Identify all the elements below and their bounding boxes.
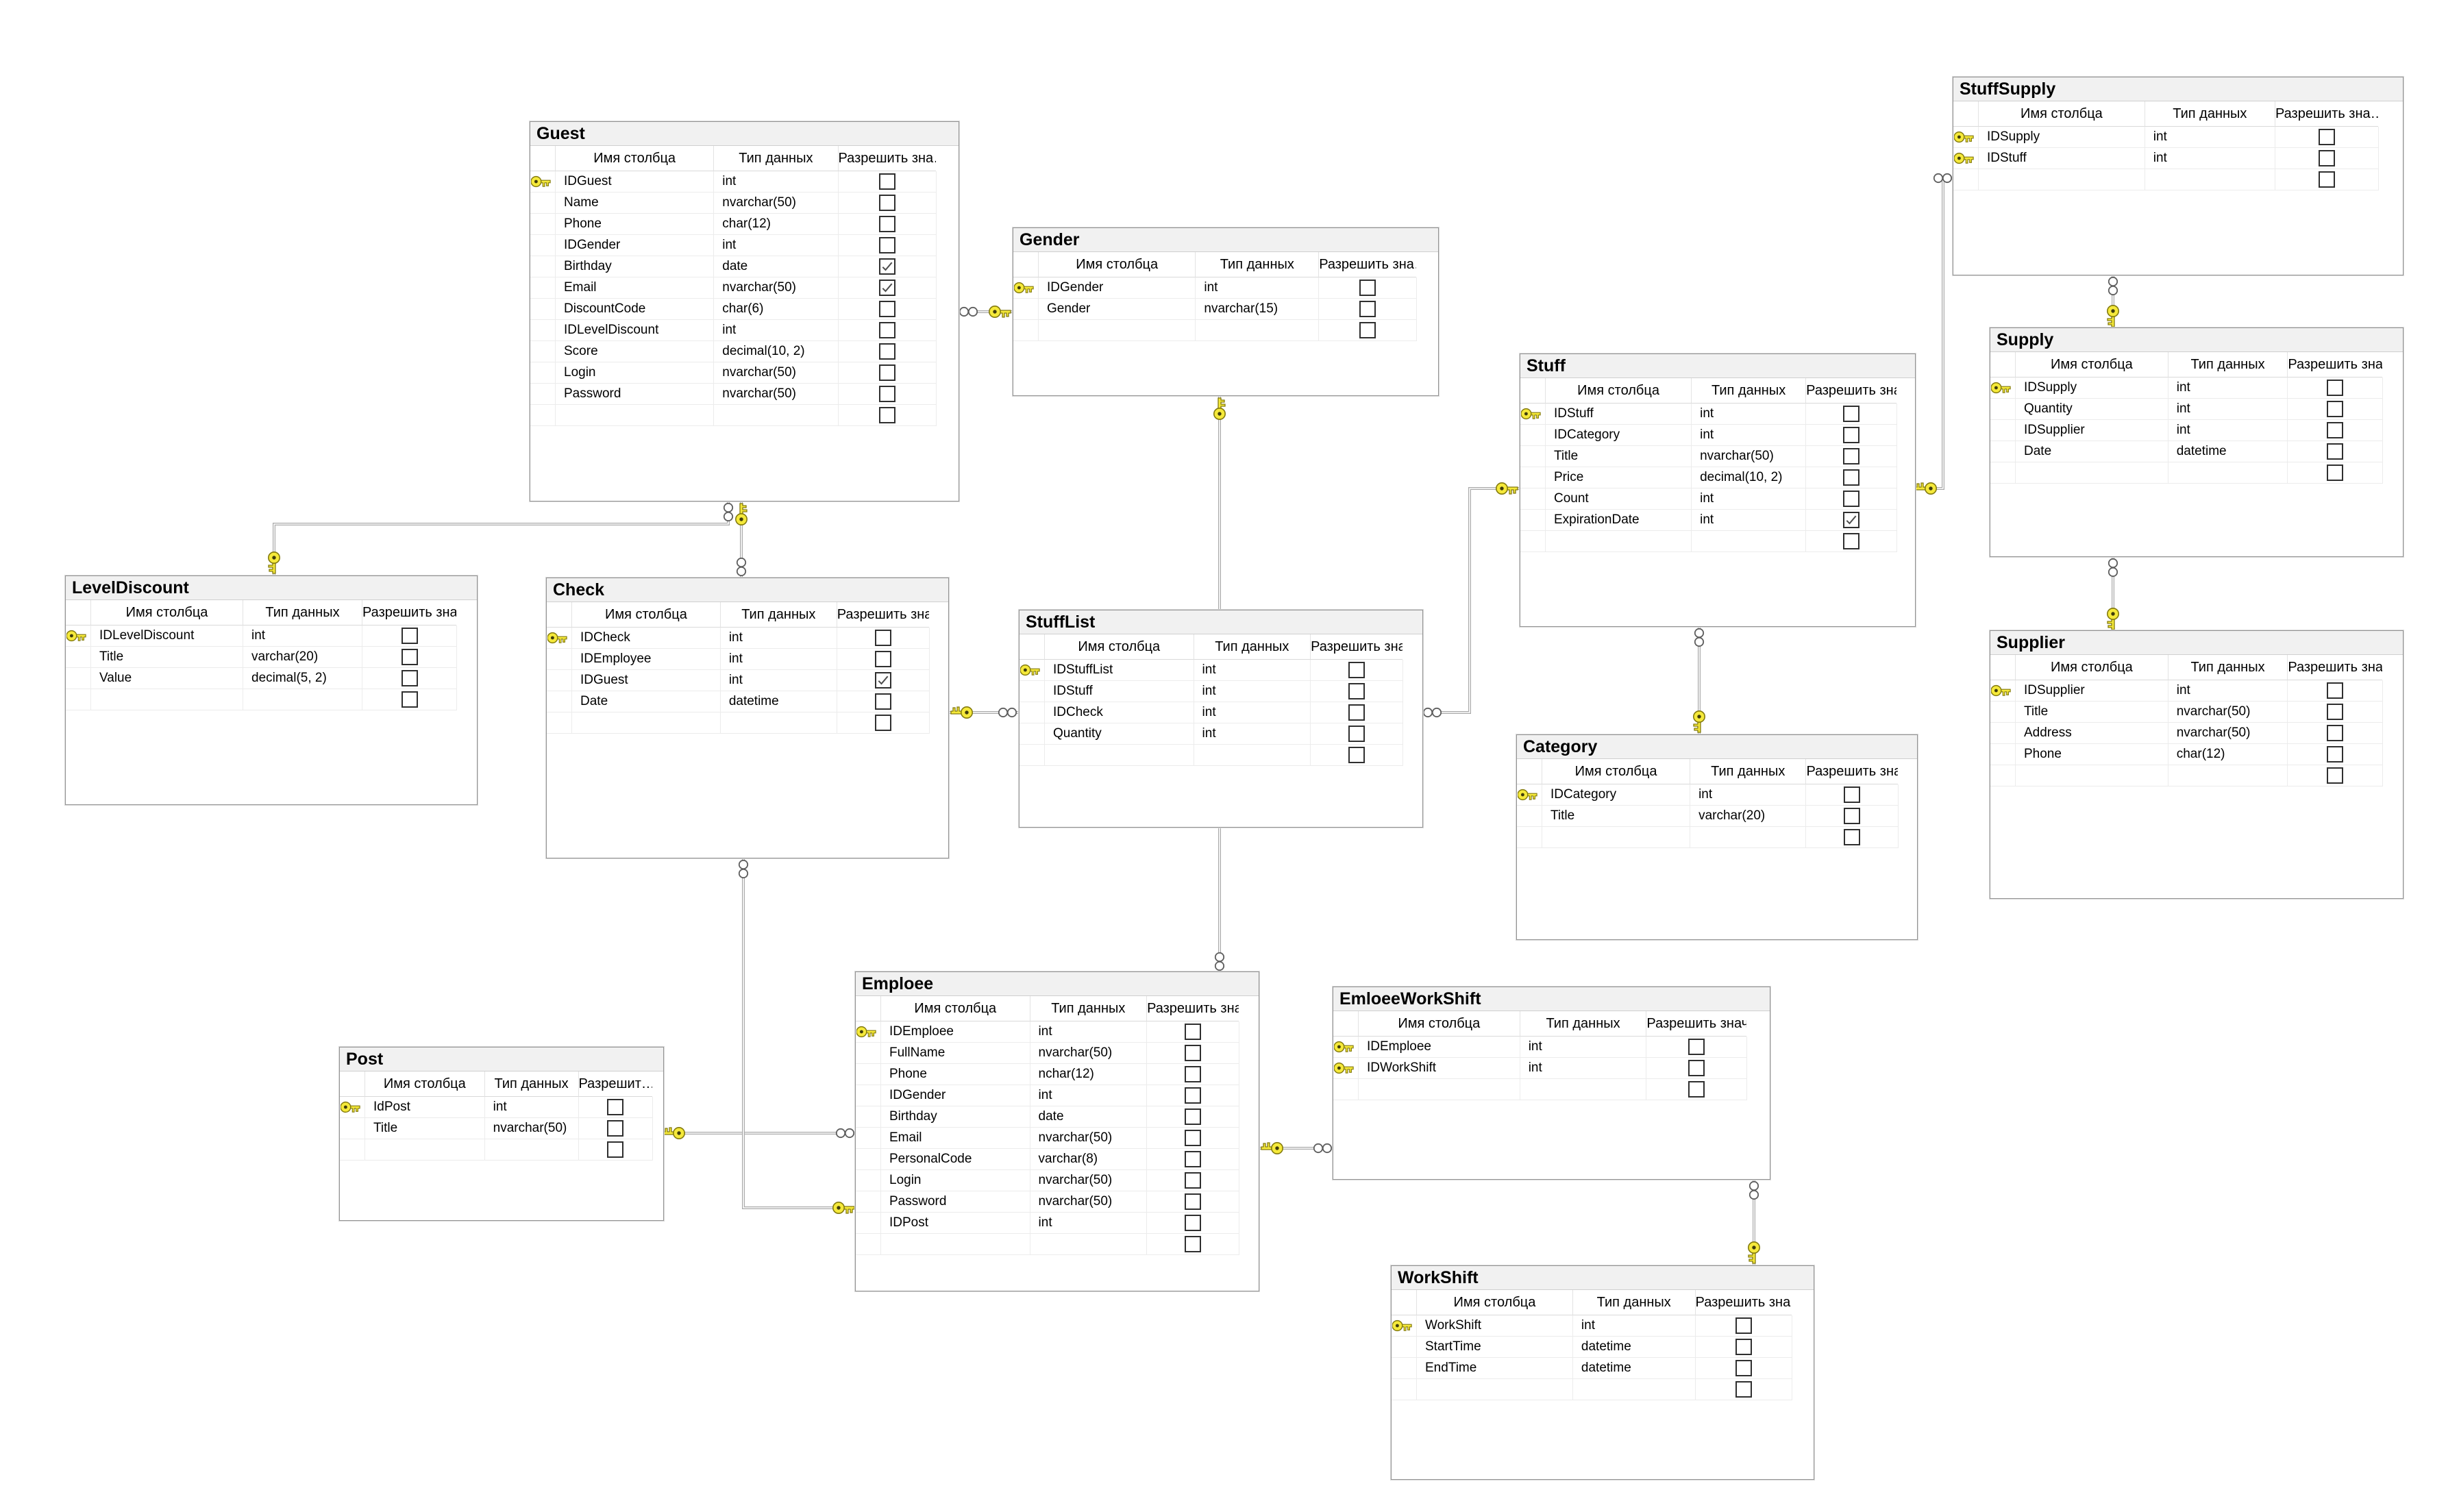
- allow-nulls-checkbox[interactable]: [875, 693, 891, 710]
- data-type-cell[interactable]: nvarchar(50): [713, 384, 837, 405]
- table-StuffList[interactable]: StuffListИмя столбцаТип данныхРазрешить …: [1019, 610, 1423, 828]
- data-type-cell[interactable]: varchar(20): [243, 647, 362, 668]
- data-type-cell[interactable]: int: [1195, 277, 1318, 299]
- data-type-cell[interactable]: [1691, 531, 1805, 552]
- allow-nulls-cell: [578, 1097, 653, 1118]
- column-name-cell[interactable]: [880, 1234, 1030, 1255]
- data-type-cell[interactable]: nvarchar(50): [713, 277, 837, 299]
- allow-nulls-checkbox[interactable]: [879, 322, 895, 338]
- allow-nulls-checkbox[interactable]: [879, 237, 895, 253]
- column-name-cell[interactable]: IDLevelDiscount: [555, 320, 713, 341]
- column-name-cell[interactable]: IDCheck: [1044, 702, 1194, 723]
- allow-nulls-checkbox[interactable]: [1688, 1081, 1705, 1098]
- allow-nulls-checkbox[interactable]: [1688, 1060, 1705, 1076]
- column-name-cell[interactable]: IDStuff: [1978, 148, 2145, 169]
- data-type-cell[interactable]: [1030, 1234, 1147, 1255]
- allow-nulls-checkbox[interactable]: [2319, 150, 2335, 166]
- row-icon-cell: [1392, 1315, 1416, 1337]
- row-icon-cell: [1990, 723, 2015, 744]
- table-Category[interactable]: CategoryИмя столбцаТип данныхРазрешить з…: [1516, 734, 1918, 940]
- data-type-cell[interactable]: nvarchar(50): [1030, 1170, 1147, 1191]
- data-type-cell[interactable]: [1520, 1079, 1646, 1100]
- table-StuffSupply[interactable]: StuffSupplyИмя столбцаТип данныхРазрешит…: [1953, 77, 2404, 275]
- allow-nulls-checkbox[interactable]: [1185, 1130, 1201, 1146]
- allow-nulls-cell: [1318, 299, 1416, 320]
- column-name-cell[interactable]: Password: [880, 1191, 1030, 1213]
- header-allow-nulls: Разрешить зна…: [1310, 634, 1403, 660]
- many-side-infinity-icon: [739, 860, 747, 878]
- fk-stufflist-check[interactable]: [949, 707, 1019, 718]
- fk-check-emploee[interactable]: [739, 858, 855, 1213]
- allow-nulls-cell: [1805, 488, 1896, 510]
- header-data-type: Тип данных: [1195, 252, 1318, 277]
- column-name-cell[interactable]: Email: [555, 277, 713, 299]
- allow-nulls-cell: [1695, 1379, 1792, 1400]
- data-type-cell[interactable]: int: [1030, 1213, 1147, 1234]
- column-name-cell[interactable]: IDSupply: [2015, 377, 2168, 399]
- data-type-cell[interactable]: nchar(12): [1030, 1064, 1147, 1085]
- column-name-cell[interactable]: [1358, 1079, 1520, 1100]
- column-name-cell[interactable]: Gender: [1038, 299, 1195, 320]
- row-icon-cell: [1990, 377, 2015, 399]
- one-side-key-icon: [663, 1128, 684, 1139]
- column-name-cell[interactable]: IDEmploee: [1358, 1037, 1520, 1058]
- data-type-cell[interactable]: int: [243, 625, 362, 647]
- primary-key-icon: [1954, 130, 1977, 144]
- column-name-cell[interactable]: IDWorkShift: [1358, 1058, 1520, 1079]
- allow-nulls-checkbox[interactable]: [2327, 725, 2343, 741]
- allow-nulls-checkbox[interactable]: [2327, 682, 2343, 699]
- allow-nulls-checkbox[interactable]: [879, 407, 895, 423]
- data-type-cell[interactable]: decimal(10, 2): [1691, 467, 1805, 488]
- data-type-cell[interactable]: int: [713, 235, 837, 256]
- data-type-cell[interactable]: [243, 689, 362, 710]
- row-icon-cell: [1392, 1337, 1416, 1358]
- allow-nulls-cell: [1805, 510, 1896, 531]
- allow-nulls-checkbox[interactable]: [879, 258, 895, 275]
- allow-nulls-checkbox[interactable]: [1735, 1317, 1752, 1334]
- fk-check-guest[interactable]: [736, 501, 747, 578]
- data-type-cell[interactable]: [2168, 462, 2288, 484]
- data-type-cell[interactable]: int: [2168, 377, 2288, 399]
- column-name-cell[interactable]: Date: [571, 691, 720, 712]
- column-name-cell[interactable]: Name: [555, 193, 713, 214]
- columns-grid: Имя столбцаТип данныхРазрешить зна…IDSup…: [1953, 101, 2403, 190]
- table-Supply[interactable]: SupplyИмя столбцаТип данныхРазрешить зна…: [1990, 327, 2404, 557]
- column-name-cell[interactable]: Phone: [2015, 744, 2168, 765]
- column-name-cell[interactable]: IDEmployee: [571, 649, 720, 670]
- column-name-cell[interactable]: [90, 689, 243, 710]
- data-type-cell[interactable]: int: [1520, 1037, 1646, 1058]
- row-icon-cell: [856, 1043, 880, 1064]
- data-type-cell[interactable]: int: [720, 670, 837, 691]
- allow-nulls-cell: [1646, 1037, 1746, 1058]
- column-name-cell[interactable]: Title: [90, 647, 243, 668]
- column-name-cell[interactable]: FullName: [880, 1043, 1030, 1064]
- header-icon-cell: [530, 146, 555, 171]
- data-type-cell[interactable]: nvarchar(50): [1691, 446, 1805, 467]
- columns-grid: Имя столбцаТип данныхРазрешить зна…IDGue…: [530, 146, 959, 426]
- data-type-cell[interactable]: [1194, 745, 1311, 766]
- column-name-cell[interactable]: [364, 1139, 484, 1161]
- data-type-cell[interactable]: int: [1030, 1021, 1147, 1043]
- data-type-cell[interactable]: datetime: [720, 691, 837, 712]
- allow-nulls-checkbox[interactable]: [879, 216, 895, 232]
- data-type-cell[interactable]: int: [2168, 680, 2288, 702]
- data-type-cell[interactable]: int: [2145, 148, 2275, 169]
- column-name-cell[interactable]: Date: [2015, 441, 2168, 462]
- allow-nulls-checkbox[interactable]: [1844, 786, 1860, 803]
- allow-nulls-checkbox[interactable]: [2327, 380, 2343, 396]
- data-type-cell[interactable]: varchar(8): [1030, 1149, 1147, 1170]
- data-type-cell[interactable]: datetime: [1572, 1337, 1695, 1358]
- column-name-cell[interactable]: Quantity: [2015, 399, 2168, 420]
- allow-nulls-checkbox[interactable]: [1185, 1236, 1201, 1252]
- header-data-type: Тип данных: [2168, 655, 2288, 680]
- allow-nulls-checkbox[interactable]: [1843, 406, 1859, 422]
- fk-ews-workshift[interactable]: [1749, 1180, 1759, 1265]
- allow-nulls-checkbox[interactable]: [1735, 1360, 1752, 1376]
- allow-nulls-checkbox[interactable]: [1843, 491, 1859, 507]
- column-name-cell[interactable]: IDGuest: [555, 171, 713, 193]
- column-name-cell[interactable]: Title: [2015, 702, 2168, 723]
- data-type-cell[interactable]: int: [1520, 1058, 1646, 1079]
- column-name-cell[interactable]: WorkShift: [1416, 1315, 1572, 1337]
- fk-emploee-post[interactable]: [663, 1128, 855, 1139]
- allow-nulls-checkbox[interactable]: [1185, 1172, 1201, 1189]
- column-name-cell[interactable]: IDGuest: [571, 670, 720, 691]
- allow-nulls-checkbox[interactable]: [607, 1120, 623, 1137]
- column-name-cell[interactable]: [1044, 745, 1194, 766]
- allow-nulls-checkbox[interactable]: [401, 628, 418, 644]
- allow-nulls-cell: [1146, 1191, 1239, 1213]
- data-type-cell[interactable]: int: [1030, 1085, 1147, 1106]
- allow-nulls-checkbox[interactable]: [875, 651, 891, 667]
- column-name-cell[interactable]: ExpirationDate: [1545, 510, 1691, 531]
- one-side-key-icon: [1915, 483, 1936, 494]
- header-column-name: Имя столбца: [1978, 101, 2145, 127]
- table-Supplier[interactable]: SupplierИмя столбцаТип данныхРазрешить з…: [1990, 630, 2404, 899]
- allow-nulls-checkbox[interactable]: [1843, 512, 1859, 528]
- data-type-cell[interactable]: int: [1691, 510, 1805, 531]
- data-type-cell[interactable]: nvarchar(15): [1195, 299, 1318, 320]
- column-name-cell[interactable]: Price: [1545, 467, 1691, 488]
- fk-guest-gender[interactable]: [959, 306, 1013, 317]
- allow-nulls-cell: [1805, 404, 1896, 425]
- row-gutter: [1239, 1149, 1259, 1170]
- allow-nulls-checkbox[interactable]: [1348, 747, 1365, 763]
- allow-nulls-cell: [1146, 1149, 1239, 1170]
- allow-nulls-checkbox[interactable]: [1843, 448, 1859, 464]
- data-type-cell[interactable]: decimal(5, 2): [243, 668, 362, 689]
- columns-grid: Имя столбцаТип данныхРазрешить зна…IDSup…: [1990, 352, 2403, 484]
- column-name-cell[interactable]: Password: [555, 384, 713, 405]
- column-name-cell[interactable]: IDGender: [555, 235, 713, 256]
- column-name-cell[interactable]: Phone: [880, 1064, 1030, 1085]
- data-type-cell[interactable]: nvarchar(50): [2168, 702, 2288, 723]
- column-name-cell[interactable]: Score: [555, 341, 713, 362]
- column-name-cell[interactable]: StartTime: [1416, 1337, 1572, 1358]
- allow-nulls-checkbox[interactable]: [2319, 129, 2335, 145]
- data-type-cell[interactable]: int: [1691, 425, 1805, 446]
- allow-nulls-checkbox[interactable]: [1348, 662, 1365, 678]
- data-type-cell[interactable]: nvarchar(50): [1030, 1191, 1147, 1213]
- allow-nulls-checkbox[interactable]: [875, 715, 891, 731]
- fk-stufflist-stuff[interactable]: [1423, 483, 1520, 717]
- allow-nulls-checkbox[interactable]: [1688, 1039, 1705, 1055]
- table-Check[interactable]: CheckИмя столбцаТип данныхРазрешить зна……: [546, 578, 949, 858]
- column-name-cell[interactable]: IDEmploee: [880, 1021, 1030, 1043]
- column-name-cell[interactable]: [1038, 320, 1195, 341]
- column-name-cell[interactable]: IDStuff: [1545, 404, 1691, 425]
- table-Guest[interactable]: GuestИмя столбцаТип данныхРазрешить зна……: [530, 121, 959, 501]
- data-type-cell[interactable]: datetime: [2168, 441, 2288, 462]
- allow-nulls-checkbox[interactable]: [2327, 422, 2343, 438]
- data-type-cell[interactable]: varchar(20): [1690, 806, 1805, 827]
- header-allow-nulls: Разрешить зна…: [362, 600, 456, 625]
- column-name-cell[interactable]: Value: [90, 668, 243, 689]
- column-name-cell[interactable]: EndTime: [1416, 1358, 1572, 1379]
- fk-stuffsupply-stuff[interactable]: [1915, 174, 1953, 494]
- column-name-cell[interactable]: Title: [1542, 806, 1690, 827]
- allow-nulls-checkbox[interactable]: [607, 1099, 623, 1115]
- data-type-cell[interactable]: nvarchar(50): [1030, 1128, 1147, 1149]
- column-name-cell[interactable]: Birthday: [555, 256, 713, 277]
- allow-nulls-checkbox[interactable]: [1844, 829, 1860, 845]
- allow-nulls-checkbox[interactable]: [1185, 1108, 1201, 1125]
- allow-nulls-checkbox[interactable]: [2319, 171, 2335, 188]
- data-type-cell[interactable]: int: [713, 171, 837, 193]
- fk-ews-emploee[interactable]: [1259, 1143, 1333, 1154]
- row-gutter: [2382, 462, 2403, 484]
- allow-nulls-checkbox[interactable]: [2327, 767, 2343, 784]
- column-name-cell[interactable]: IDLevelDiscount: [90, 625, 243, 647]
- column-name-cell[interactable]: IDGender: [880, 1085, 1030, 1106]
- data-type-cell[interactable]: [2168, 765, 2288, 786]
- header-icon-cell: [856, 996, 880, 1021]
- allow-nulls-checkbox[interactable]: [607, 1141, 623, 1158]
- fk-stuff-category[interactable]: [1694, 627, 1705, 734]
- data-type-cell[interactable]: int: [1572, 1315, 1695, 1337]
- column-name-cell[interactable]: IDPost: [880, 1213, 1030, 1234]
- row-icon-cell: [66, 668, 90, 689]
- column-name-cell[interactable]: Email: [880, 1128, 1030, 1149]
- column-name-cell[interactable]: Title: [364, 1118, 484, 1139]
- allow-nulls-checkbox[interactable]: [1185, 1151, 1201, 1167]
- column-name-cell[interactable]: Phone: [555, 214, 713, 235]
- data-type-cell[interactable]: [720, 712, 837, 734]
- row-gutter: [1239, 1191, 1259, 1213]
- allow-nulls-checkbox[interactable]: [1359, 322, 1376, 338]
- allow-nulls-checkbox[interactable]: [879, 280, 895, 296]
- allow-nulls-checkbox[interactable]: [879, 173, 895, 190]
- row-gutter: [1403, 745, 1422, 766]
- data-type-cell[interactable]: int: [1194, 681, 1311, 702]
- data-type-cell[interactable]: int: [484, 1097, 578, 1118]
- allow-nulls-checkbox[interactable]: [1843, 469, 1859, 486]
- header-icon-cell: [1990, 352, 2015, 377]
- row-icon-cell: [1013, 299, 1038, 320]
- data-type-cell[interactable]: [713, 405, 837, 426]
- column-name-cell[interactable]: [571, 712, 720, 734]
- allow-nulls-checkbox[interactable]: [1735, 1339, 1752, 1355]
- allow-nulls-checkbox[interactable]: [1185, 1024, 1201, 1040]
- allow-nulls-cell: [1146, 1213, 1239, 1234]
- row-gutter: [1403, 681, 1422, 702]
- allow-nulls-checkbox[interactable]: [1348, 726, 1365, 742]
- table-title: EmloeeWorkShift: [1333, 987, 1770, 1011]
- column-name-cell[interactable]: Count: [1545, 488, 1691, 510]
- allow-nulls-checkbox[interactable]: [1185, 1045, 1201, 1061]
- data-type-cell[interactable]: int: [1194, 702, 1311, 723]
- data-type-cell[interactable]: int: [1194, 660, 1311, 681]
- allow-nulls-checkbox[interactable]: [1843, 427, 1859, 443]
- column-name-cell[interactable]: Title: [1545, 446, 1691, 467]
- data-type-cell[interactable]: nvarchar(50): [2168, 723, 2288, 744]
- data-type-cell[interactable]: nvarchar(50): [713, 193, 837, 214]
- allow-nulls-checkbox[interactable]: [879, 386, 895, 402]
- one-side-key-icon: [736, 504, 747, 525]
- column-name-cell[interactable]: [1542, 827, 1690, 848]
- column-name-cell[interactable]: Birthday: [880, 1106, 1030, 1128]
- allow-nulls-checkbox[interactable]: [401, 670, 418, 686]
- data-type-cell[interactable]: nvarchar(50): [713, 362, 837, 384]
- allow-nulls-checkbox[interactable]: [879, 301, 895, 317]
- data-type-cell[interactable]: [1690, 827, 1805, 848]
- column-name-cell[interactable]: IDCategory: [1542, 784, 1690, 806]
- allow-nulls-checkbox[interactable]: [401, 691, 418, 708]
- column-name-cell[interactable]: IDSupplier: [2015, 680, 2168, 702]
- data-type-cell[interactable]: int: [2168, 420, 2288, 441]
- table-Stuff[interactable]: StuffИмя столбцаТип данныхРазрешить зна……: [1520, 354, 1916, 627]
- table-Post[interactable]: PostИмя столбцаТип данныхРазрешит…IdPost…: [339, 1047, 664, 1221]
- columns-grid: Имя столбцаТип данныхРазрешить зна…IDChe…: [547, 602, 948, 734]
- fk-stuffsupply-supply[interactable]: [2108, 275, 2118, 327]
- allow-nulls-checkbox[interactable]: [1359, 280, 1376, 296]
- column-name-cell[interactable]: DiscountCode: [555, 299, 713, 320]
- data-type-cell[interactable]: int: [720, 649, 837, 670]
- data-type-cell[interactable]: [1572, 1379, 1695, 1400]
- column-name-cell[interactable]: IDCheck: [571, 628, 720, 649]
- allow-nulls-checkbox[interactable]: [875, 672, 891, 689]
- table-EmloeeWorkShift[interactable]: EmloeeWorkShiftИмя столбцаТип данныхРазр…: [1333, 987, 1770, 1180]
- data-type-cell[interactable]: date: [1030, 1106, 1147, 1128]
- column-name-cell[interactable]: IDStuff: [1044, 681, 1194, 702]
- row-gutter: [1239, 1043, 1259, 1064]
- allow-nulls-checkbox[interactable]: [401, 649, 418, 665]
- column-name-cell[interactable]: [555, 405, 713, 426]
- many-side-infinity-icon: [960, 308, 977, 316]
- table-WorkShift[interactable]: WorkShiftИмя столбцаТип данныхРазрешить …: [1391, 1265, 1814, 1480]
- column-name-cell[interactable]: [1545, 531, 1691, 552]
- column-name-cell[interactable]: IDSupplier: [2015, 420, 2168, 441]
- data-type-cell[interactable]: int: [1194, 723, 1311, 745]
- allow-nulls-checkbox[interactable]: [1735, 1381, 1752, 1398]
- row-icon-cell: [1520, 467, 1545, 488]
- data-type-cell[interactable]: [484, 1139, 578, 1161]
- column-name-cell[interactable]: [1978, 169, 2145, 190]
- column-name-cell[interactable]: Login: [880, 1170, 1030, 1191]
- allow-nulls-checkbox[interactable]: [879, 195, 895, 211]
- fk-guest-leveldiscount[interactable]: [269, 501, 732, 575]
- table-Gender[interactable]: GenderИмя столбцаТип данныхРазрешить зна…: [1013, 227, 1439, 396]
- header-icon-cell: [1013, 252, 1038, 277]
- data-type-cell[interactable]: int: [1690, 784, 1805, 806]
- table-LevelDiscount[interactable]: LevelDiscountИмя столбцаТип данныхРазреш…: [65, 575, 478, 805]
- column-name-cell[interactable]: IDCategory: [1545, 425, 1691, 446]
- data-type-cell[interactable]: [1195, 320, 1318, 341]
- allow-nulls-cell: [362, 668, 456, 689]
- allow-nulls-checkbox[interactable]: [1844, 808, 1860, 824]
- data-type-cell[interactable]: char(12): [713, 214, 837, 235]
- data-type-cell[interactable]: int: [1691, 404, 1805, 425]
- header-data-type: Тип данных: [713, 146, 837, 171]
- data-type-cell[interactable]: [2145, 169, 2275, 190]
- data-type-cell[interactable]: datetime: [1572, 1358, 1695, 1379]
- allow-nulls-checkbox[interactable]: [1185, 1215, 1201, 1231]
- allow-nulls-checkbox[interactable]: [879, 364, 895, 381]
- data-type-cell[interactable]: int: [1691, 488, 1805, 510]
- allow-nulls-checkbox[interactable]: [1348, 683, 1365, 699]
- data-type-cell[interactable]: char(12): [2168, 744, 2288, 765]
- data-type-cell[interactable]: char(6): [713, 299, 837, 320]
- table-Emploee[interactable]: EmploeeИмя столбцаТип данныхРазрешить зн…: [855, 971, 1259, 1291]
- allow-nulls-checkbox[interactable]: [875, 630, 891, 646]
- data-type-cell[interactable]: date: [713, 256, 837, 277]
- row-gutter: [1896, 404, 1915, 425]
- column-name-cell[interactable]: PersonalCode: [880, 1149, 1030, 1170]
- column-name-cell[interactable]: [1416, 1379, 1572, 1400]
- column-name-cell[interactable]: [2015, 462, 2168, 484]
- column-name-cell[interactable]: IDStuffList: [1044, 660, 1194, 681]
- row-icon-cell: [547, 670, 571, 691]
- column-name-cell[interactable]: Login: [555, 362, 713, 384]
- allow-nulls-checkbox[interactable]: [1843, 533, 1859, 549]
- fk-supply-supplier[interactable]: [2108, 557, 2118, 630]
- data-type-cell[interactable]: int: [720, 628, 837, 649]
- row-icon-cell: [530, 405, 555, 426]
- one-side-key-icon: [1694, 711, 1705, 732]
- column-name-cell[interactable]: Quantity: [1044, 723, 1194, 745]
- data-type-cell[interactable]: int: [713, 320, 837, 341]
- allow-nulls-checkbox[interactable]: [1185, 1087, 1201, 1104]
- data-type-cell[interactable]: decimal(10, 2): [713, 341, 837, 362]
- data-type-cell[interactable]: int: [2168, 399, 2288, 420]
- data-type-cell[interactable]: nvarchar(50): [484, 1118, 578, 1139]
- allow-nulls-checkbox[interactable]: [1185, 1193, 1201, 1210]
- allow-nulls-checkbox[interactable]: [2327, 443, 2343, 460]
- row-icon-cell: [1392, 1358, 1416, 1379]
- column-name-cell[interactable]: [2015, 765, 2168, 786]
- row-gutter: [2378, 148, 2403, 169]
- column-name-cell[interactable]: IdPost: [364, 1097, 484, 1118]
- allow-nulls-checkbox[interactable]: [2327, 464, 2343, 481]
- primary-key-icon: [1020, 663, 1043, 677]
- column-name-cell[interactable]: IDSupply: [1978, 127, 2145, 148]
- data-type-cell[interactable]: nvarchar(50): [1030, 1043, 1147, 1064]
- allow-nulls-checkbox[interactable]: [1185, 1066, 1201, 1082]
- allow-nulls-checkbox[interactable]: [1348, 704, 1365, 721]
- data-type-cell[interactable]: int: [2145, 127, 2275, 148]
- allow-nulls-checkbox[interactable]: [2327, 746, 2343, 763]
- allow-nulls-checkbox[interactable]: [879, 343, 895, 360]
- allow-nulls-checkbox[interactable]: [1359, 301, 1376, 317]
- allow-nulls-cell: [1805, 425, 1896, 446]
- allow-nulls-checkbox[interactable]: [2327, 401, 2343, 417]
- allow-nulls-checkbox[interactable]: [2327, 704, 2343, 720]
- column-name-cell[interactable]: Address: [2015, 723, 2168, 744]
- column-name-cell[interactable]: IDGender: [1038, 277, 1195, 299]
